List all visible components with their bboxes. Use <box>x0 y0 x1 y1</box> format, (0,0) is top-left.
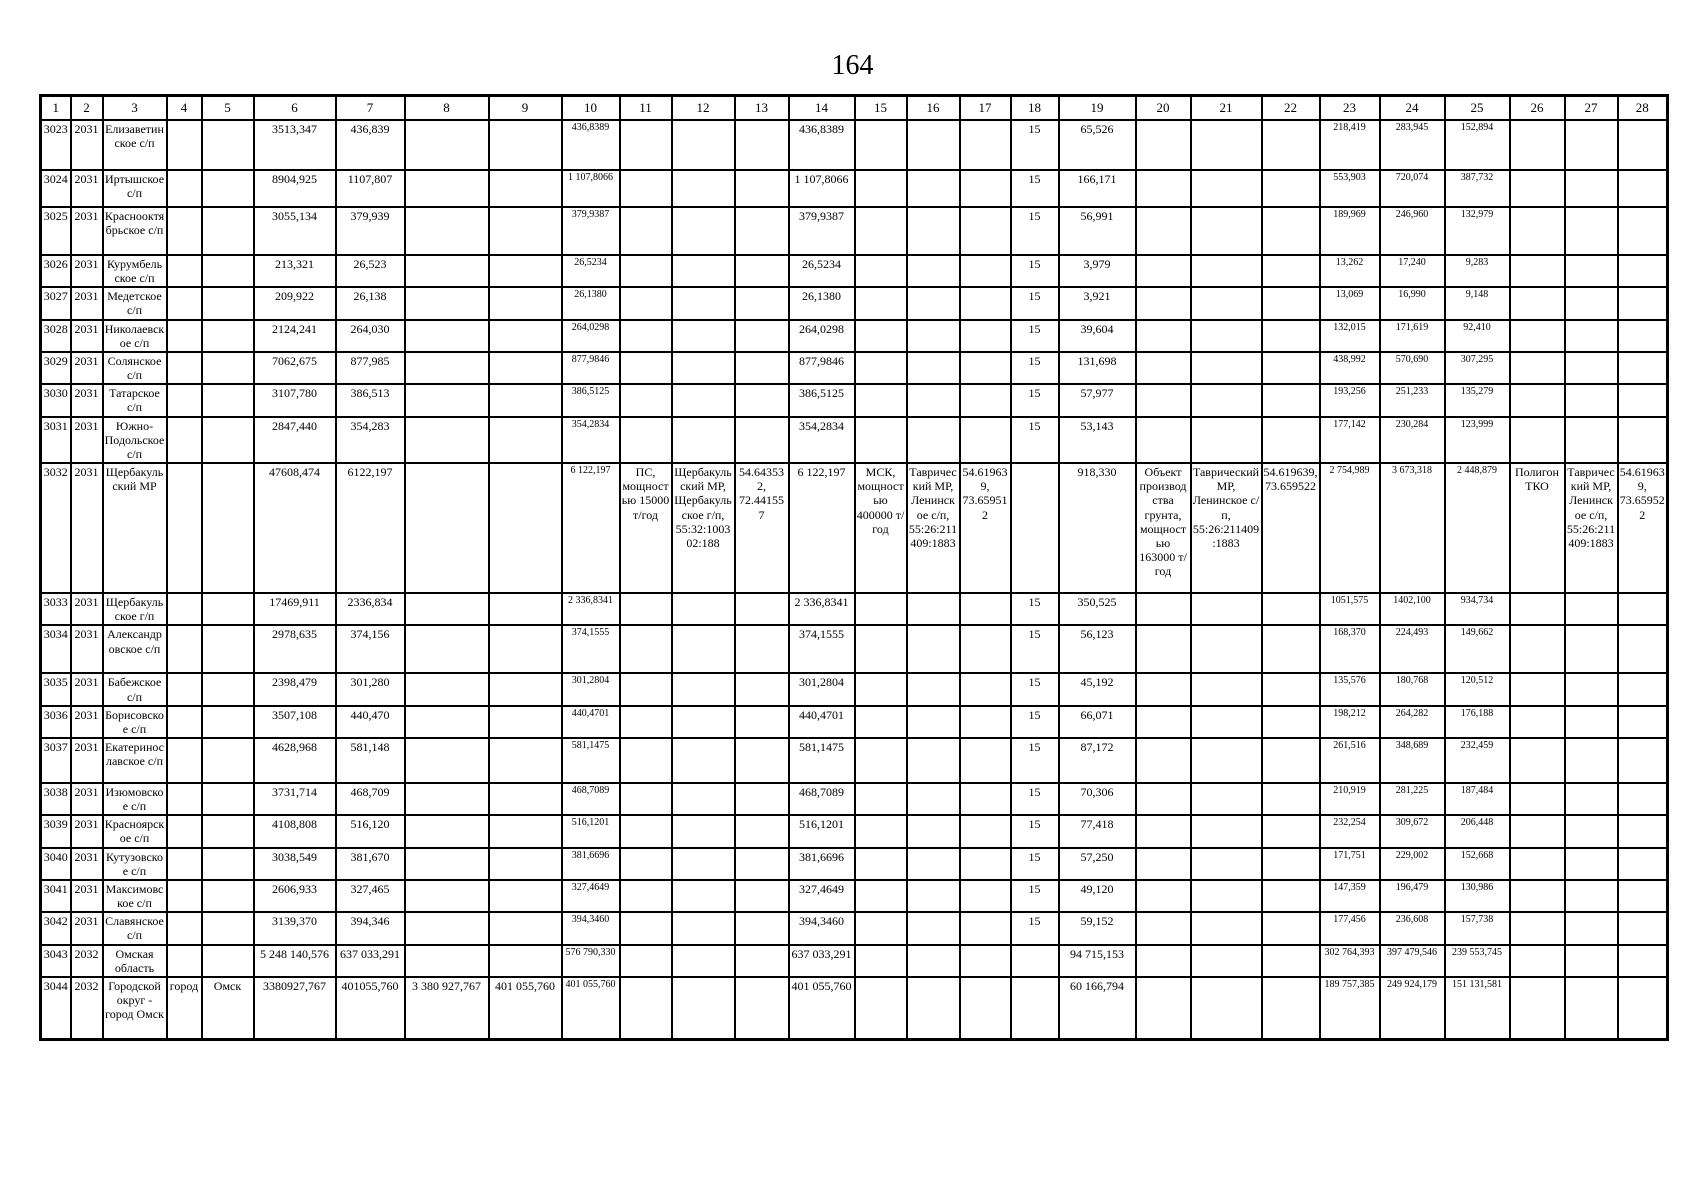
table-cell: 206,448 <box>1445 815 1510 847</box>
table-cell: 436,839 <box>336 120 405 170</box>
table-cell <box>1618 170 1668 207</box>
table-cell <box>1136 880 1191 912</box>
table-cell <box>167 120 202 170</box>
table-cell: 26,5234 <box>562 255 620 287</box>
table-cell <box>1510 120 1565 170</box>
table-cell <box>1565 848 1618 880</box>
table-cell <box>405 170 489 207</box>
table-cell <box>672 417 735 463</box>
table-cell <box>405 593 489 625</box>
table-cell <box>1565 706 1618 738</box>
table-cell <box>1510 706 1565 738</box>
table-cell: 401 055,760 <box>789 977 855 1040</box>
table-cell: 26,5234 <box>789 255 855 287</box>
table-cell <box>1191 706 1262 738</box>
table-cell <box>202 738 254 783</box>
table-cell <box>620 417 672 463</box>
table-cell <box>1618 417 1668 463</box>
table-cell <box>907 673 960 705</box>
table-cell: 2031 <box>71 384 103 416</box>
table-cell <box>960 320 1011 352</box>
row-id-cell: 3025 <box>41 207 71 255</box>
table-cell: 2031 <box>71 170 103 207</box>
table-cell <box>1565 417 1618 463</box>
table-cell: 581,1475 <box>789 738 855 783</box>
table-cell <box>672 815 735 847</box>
table-cell: 386,5125 <box>562 384 620 416</box>
table-row: 30252031Краснооктябрьское с/п3055,134379… <box>41 207 1668 255</box>
table-cell: 381,6696 <box>789 848 855 880</box>
table-cell: 264,0298 <box>789 320 855 352</box>
table-cell: 2031 <box>71 738 103 783</box>
table-row: 30302031Татарское с/п3107,780386,513386,… <box>41 384 1668 416</box>
table-cell: 56,123 <box>1059 625 1136 673</box>
table-cell: 210,919 <box>1320 783 1380 815</box>
table-cell: 177,142 <box>1320 417 1380 463</box>
table-cell <box>1262 120 1320 170</box>
table-cell <box>672 738 735 783</box>
table-cell <box>855 977 907 1040</box>
table-cell: 4108,808 <box>254 815 336 847</box>
table-cell <box>405 320 489 352</box>
table-cell: 15 <box>1011 848 1059 880</box>
table-cell: 386,513 <box>336 384 405 416</box>
table-cell: Изюмовское с/п <box>103 783 167 815</box>
table-cell <box>735 783 789 815</box>
table-cell: 57,250 <box>1059 848 1136 880</box>
table-cell: 56,991 <box>1059 207 1136 255</box>
table-cell: 166,171 <box>1059 170 1136 207</box>
table-cell: 47608,474 <box>254 463 336 593</box>
table-cell <box>167 945 202 977</box>
row-id-cell: 3029 <box>41 352 71 384</box>
table-cell <box>1262 945 1320 977</box>
table-cell: 230,284 <box>1380 417 1445 463</box>
table-cell: 15 <box>1011 593 1059 625</box>
table-header-cell: 6 <box>254 96 336 121</box>
table-cell: 2032 <box>71 977 103 1040</box>
table-cell <box>202 912 254 944</box>
table-cell: 401 055,760 <box>562 977 620 1040</box>
table-cell <box>1565 120 1618 170</box>
table-cell: 77,418 <box>1059 815 1136 847</box>
table-cell <box>489 287 562 319</box>
table-cell <box>167 593 202 625</box>
table-cell <box>907 352 960 384</box>
table-row: 30372031Екатеринославское с/п4628,968581… <box>41 738 1668 783</box>
table-cell <box>855 673 907 705</box>
table-cell <box>1565 783 1618 815</box>
table-cell <box>1565 945 1618 977</box>
table-cell <box>1510 783 1565 815</box>
table-cell <box>907 738 960 783</box>
table-cell <box>907 417 960 463</box>
table-cell: 246,960 <box>1380 207 1445 255</box>
table-cell <box>1136 977 1191 1040</box>
table-cell <box>960 880 1011 912</box>
table-header-cell: 17 <box>960 96 1011 121</box>
table-cell: 66,071 <box>1059 706 1136 738</box>
table-cell <box>1191 815 1262 847</box>
table-cell: 57,977 <box>1059 384 1136 416</box>
table-cell <box>907 977 960 1040</box>
table-cell: 2031 <box>71 352 103 384</box>
table-cell <box>620 287 672 319</box>
table-cell: 65,526 <box>1059 120 1136 170</box>
row-id-cell: 3044 <box>41 977 71 1040</box>
table-cell <box>1262 384 1320 416</box>
table-cell <box>907 120 960 170</box>
row-id-cell: 3028 <box>41 320 71 352</box>
table-cell: 15 <box>1011 120 1059 170</box>
table-cell: 283,945 <box>1380 120 1445 170</box>
table-cell <box>202 255 254 287</box>
table-cell <box>907 255 960 287</box>
table-cell: 2 336,8341 <box>562 593 620 625</box>
table-cell: 60 166,794 <box>1059 977 1136 1040</box>
table-cell <box>960 673 1011 705</box>
table-cell <box>1510 384 1565 416</box>
table-cell <box>202 170 254 207</box>
table-cell <box>405 945 489 977</box>
table-cell <box>1618 783 1668 815</box>
table-cell: Полигон ТКО <box>1510 463 1565 593</box>
table-cell <box>167 848 202 880</box>
table-cell: 123,999 <box>1445 417 1510 463</box>
table-cell <box>735 120 789 170</box>
table-cell: 2336,834 <box>336 593 405 625</box>
table-cell: 6122,197 <box>336 463 405 593</box>
table-cell: 877,9846 <box>562 352 620 384</box>
table-cell <box>907 815 960 847</box>
table-cell: 9,283 <box>1445 255 1510 287</box>
table-row: 30342031Александровское с/п2978,635374,1… <box>41 625 1668 673</box>
table-cell <box>167 912 202 944</box>
table-cell: Борисовское с/п <box>103 706 167 738</box>
table-cell <box>1565 593 1618 625</box>
table-cell <box>735 320 789 352</box>
table-cell <box>405 738 489 783</box>
table-cell: 3,979 <box>1059 255 1136 287</box>
table-cell: 401 055,760 <box>489 977 562 1040</box>
table-cell: 8904,925 <box>254 170 336 207</box>
table-cell <box>907 384 960 416</box>
table-cell: Южно-Подольское с/п <box>103 417 167 463</box>
table-cell <box>620 593 672 625</box>
table-cell: город <box>167 977 202 1040</box>
table-cell <box>672 848 735 880</box>
table-cell <box>1618 287 1668 319</box>
row-id-cell: 3027 <box>41 287 71 319</box>
table-cell <box>672 706 735 738</box>
table-cell: 516,120 <box>336 815 405 847</box>
table-cell: 7062,675 <box>254 352 336 384</box>
table-cell: 394,3460 <box>562 912 620 944</box>
table-cell <box>405 815 489 847</box>
table-cell: Славянское с/п <box>103 912 167 944</box>
table-cell: 2 448,879 <box>1445 463 1510 593</box>
table-cell <box>1191 120 1262 170</box>
table-row: 30322031Щербакульский МР47608,4746122,19… <box>41 463 1668 593</box>
table-cell: 570,690 <box>1380 352 1445 384</box>
table-cell <box>202 706 254 738</box>
table-header-row: 1234567891011121314151617181920212223242… <box>41 96 1668 121</box>
table-cell: 374,156 <box>336 625 405 673</box>
table-cell <box>855 352 907 384</box>
table-cell: 1402,100 <box>1380 593 1445 625</box>
table-cell <box>620 912 672 944</box>
table-cell: 2 336,8341 <box>789 593 855 625</box>
table-cell <box>1136 207 1191 255</box>
table-cell: 15 <box>1011 738 1059 783</box>
table-cell <box>1262 287 1320 319</box>
table-cell <box>672 625 735 673</box>
table-cell <box>907 320 960 352</box>
table-cell <box>202 120 254 170</box>
table-cell <box>620 120 672 170</box>
table-cell: 239 553,745 <box>1445 945 1510 977</box>
table-cell <box>960 738 1011 783</box>
table-cell <box>672 170 735 207</box>
table-cell: 379,939 <box>336 207 405 255</box>
table-cell <box>1510 738 1565 783</box>
table-cell: 229,002 <box>1380 848 1445 880</box>
table-cell <box>1618 207 1668 255</box>
table-cell: Татарское с/п <box>103 384 167 416</box>
table-cell <box>202 320 254 352</box>
table-cell: 2031 <box>71 625 103 673</box>
table-cell <box>1510 815 1565 847</box>
table-cell: 264,282 <box>1380 706 1445 738</box>
table-cell: 1107,807 <box>336 170 405 207</box>
table-cell <box>907 287 960 319</box>
row-id-cell: 3036 <box>41 706 71 738</box>
table-cell <box>907 625 960 673</box>
table-cell: 264,0298 <box>562 320 620 352</box>
table-cell <box>620 815 672 847</box>
table-cell <box>405 625 489 673</box>
table-cell <box>1618 673 1668 705</box>
table-cell <box>405 673 489 705</box>
table-cell <box>960 352 1011 384</box>
table-cell <box>735 673 789 705</box>
table-cell: 581,148 <box>336 738 405 783</box>
table-cell: 436,8389 <box>789 120 855 170</box>
table-cell <box>167 417 202 463</box>
table-cell: ПС, мощностью 15000 т/год <box>620 463 672 593</box>
table-cell: 3 380 927,767 <box>405 977 489 1040</box>
table-cell: Кутузовское с/п <box>103 848 167 880</box>
table-cell <box>489 673 562 705</box>
table-header-cell: 5 <box>202 96 254 121</box>
table-cell: 877,9846 <box>789 352 855 384</box>
table-cell <box>907 880 960 912</box>
table-header-cell: 16 <box>907 96 960 121</box>
table-cell: 301,2804 <box>562 673 620 705</box>
table-cell: Максимовское с/п <box>103 880 167 912</box>
table-cell <box>1262 207 1320 255</box>
table-cell: 401055,760 <box>336 977 405 1040</box>
table-cell <box>1510 912 1565 944</box>
table-cell: 151 131,581 <box>1445 977 1510 1040</box>
table-cell <box>489 207 562 255</box>
table-cell <box>1510 320 1565 352</box>
table-cell: 15 <box>1011 417 1059 463</box>
table-cell: 394,346 <box>336 912 405 944</box>
table-cell <box>1565 880 1618 912</box>
table-cell <box>405 287 489 319</box>
table-cell <box>1136 417 1191 463</box>
table-cell <box>620 738 672 783</box>
table-cell <box>202 815 254 847</box>
table-cell <box>167 170 202 207</box>
table-cell: 4628,968 <box>254 738 336 783</box>
table-cell <box>1262 593 1320 625</box>
table-cell: 3 673,318 <box>1380 463 1445 593</box>
table-cell: 132,015 <box>1320 320 1380 352</box>
table-cell: 218,419 <box>1320 120 1380 170</box>
table-cell: 16,990 <box>1380 287 1445 319</box>
table-cell <box>167 463 202 593</box>
table-cell: 307,295 <box>1445 352 1510 384</box>
table-cell <box>1136 815 1191 847</box>
table-header-cell: 19 <box>1059 96 1136 121</box>
table-cell: 2031 <box>71 463 103 593</box>
table-cell: 2031 <box>71 673 103 705</box>
table-cell <box>167 255 202 287</box>
table-cell <box>960 255 1011 287</box>
table-cell: 152,668 <box>1445 848 1510 880</box>
table-cell <box>620 977 672 1040</box>
table-cell <box>202 593 254 625</box>
table-cell <box>167 880 202 912</box>
table-cell <box>735 352 789 384</box>
table-header-cell: 25 <box>1445 96 1510 121</box>
table-cell <box>489 706 562 738</box>
table-cell <box>735 880 789 912</box>
table-cell: 468,7089 <box>789 783 855 815</box>
table-cell <box>672 207 735 255</box>
table-cell: 2031 <box>71 783 103 815</box>
table-cell <box>1262 848 1320 880</box>
table-cell <box>1136 120 1191 170</box>
table-row: 30392031Красноярское с/п4108,808516,1205… <box>41 815 1668 847</box>
table-cell <box>405 706 489 738</box>
table-cell <box>1191 287 1262 319</box>
table-cell: 135,279 <box>1445 384 1510 416</box>
table-cell <box>1262 255 1320 287</box>
table-row: 30402031Кутузовское с/п3038,549381,67038… <box>41 848 1668 880</box>
table-cell: 374,1555 <box>789 625 855 673</box>
table-cell: Солянское с/п <box>103 352 167 384</box>
table-cell: 45,192 <box>1059 673 1136 705</box>
table-cell <box>1136 384 1191 416</box>
table-cell <box>1191 593 1262 625</box>
table-cell <box>489 255 562 287</box>
table-cell: 397 479,546 <box>1380 945 1445 977</box>
table-cell: 92,410 <box>1445 320 1510 352</box>
table-cell <box>620 352 672 384</box>
table-cell <box>735 912 789 944</box>
table-cell <box>672 255 735 287</box>
table-cell <box>672 120 735 170</box>
table-header-cell: 2 <box>71 96 103 121</box>
table-cell <box>405 880 489 912</box>
table-cell <box>1136 706 1191 738</box>
table-header-cell: 15 <box>855 96 907 121</box>
table-cell <box>405 783 489 815</box>
table-cell: 261,516 <box>1320 738 1380 783</box>
table-cell <box>1191 880 1262 912</box>
table-cell: 3380927,767 <box>254 977 336 1040</box>
table-cell <box>1011 463 1059 593</box>
table-cell <box>1262 170 1320 207</box>
table-cell <box>1565 738 1618 783</box>
table-header-cell: 22 <box>1262 96 1320 121</box>
table-cell <box>672 783 735 815</box>
table-row: 30292031Солянское с/п7062,675877,985877,… <box>41 352 1668 384</box>
table-cell <box>489 848 562 880</box>
table-cell <box>1510 945 1565 977</box>
table-cell <box>1262 738 1320 783</box>
table-cell: 9,148 <box>1445 287 1510 319</box>
table-cell <box>1136 352 1191 384</box>
table-cell: 3139,370 <box>254 912 336 944</box>
table-cell: 15 <box>1011 320 1059 352</box>
table-cell <box>1618 255 1668 287</box>
table-cell: 59,152 <box>1059 912 1136 944</box>
table-cell: 5 248 140,576 <box>254 945 336 977</box>
table-cell: 15 <box>1011 673 1059 705</box>
table-cell: 379,9387 <box>562 207 620 255</box>
table-cell <box>735 170 789 207</box>
table-cell: 2032 <box>71 945 103 977</box>
table-cell: 2031 <box>71 706 103 738</box>
table-cell: 2031 <box>71 320 103 352</box>
table-cell <box>907 912 960 944</box>
table-cell: Иртышское с/п <box>103 170 167 207</box>
table-header-cell: 14 <box>789 96 855 121</box>
table-cell: 301,280 <box>336 673 405 705</box>
table-cell <box>202 384 254 416</box>
table-cell <box>202 417 254 463</box>
table-cell <box>1618 593 1668 625</box>
row-id-cell: 3039 <box>41 815 71 847</box>
table-cell: 301,2804 <box>789 673 855 705</box>
table-cell <box>855 880 907 912</box>
table-cell: 26,138 <box>336 287 405 319</box>
table-cell <box>620 625 672 673</box>
table-cell: 54.619639, 73.659522 <box>1262 463 1320 593</box>
table-cell: 6 122,197 <box>562 463 620 593</box>
table-cell: 2031 <box>71 207 103 255</box>
table-cell: 15 <box>1011 783 1059 815</box>
table-cell <box>405 848 489 880</box>
table-cell: 15 <box>1011 815 1059 847</box>
table-cell <box>620 945 672 977</box>
table-cell: 3731,714 <box>254 783 336 815</box>
table-cell: 54.643532, 72.441557 <box>735 463 789 593</box>
table-cell <box>202 352 254 384</box>
table-cell: Курумбельское с/п <box>103 255 167 287</box>
table-cell <box>1136 320 1191 352</box>
table-cell <box>907 207 960 255</box>
table-cell: 54.619639, 73.659522 <box>1618 463 1668 593</box>
table-cell: 2606,933 <box>254 880 336 912</box>
table-cell <box>855 706 907 738</box>
table-cell <box>960 384 1011 416</box>
table-cell <box>1510 170 1565 207</box>
